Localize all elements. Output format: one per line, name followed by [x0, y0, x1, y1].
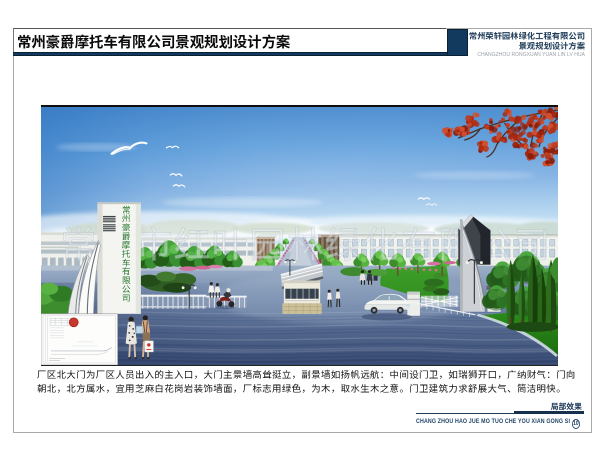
- svg-text:司: 司: [121, 292, 130, 304]
